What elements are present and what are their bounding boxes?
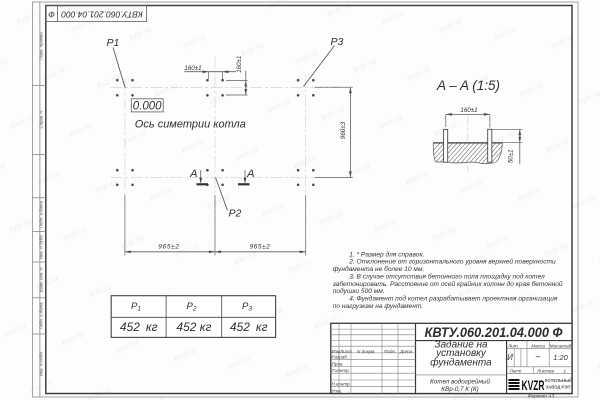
svg-text:КОТЕЛЬНЫЙ: КОТЕЛЬНЫЙ	[545, 378, 572, 383]
svg-text:N докум.: N докум.	[357, 349, 376, 354]
svg-text:A: A	[246, 168, 254, 180]
svg-text:Инв. N дубл.: Инв. N дубл.	[38, 234, 43, 259]
svg-text:КВТУ.060.201.04.000 Ф: КВТУ.060.201.04.000 Ф	[425, 324, 563, 340]
svg-text:A: A	[189, 168, 197, 180]
svg-text:KVZR: KVZR	[522, 377, 545, 393]
svg-text:Дата: Дата	[399, 349, 413, 354]
svg-text:фундамента не более 10 мм.: фундамента не более 10 мм.	[333, 265, 425, 273]
svg-text:Подп. и дата: Подп. и дата	[38, 302, 43, 330]
svg-text:452 кг: 452 кг	[120, 320, 158, 334]
svg-text:КВр-0,7 К (К): КВр-0,7 К (К)	[441, 386, 478, 393]
svg-text:965±2: 965±2	[158, 243, 179, 250]
svg-text:Справ. N: Справ. N	[38, 110, 43, 129]
svg-text:Лист: Лист	[509, 369, 522, 374]
svg-text:И: И	[507, 353, 513, 362]
svg-text:фундамента: фундамента	[430, 356, 492, 368]
svg-text:P2: P2	[229, 208, 242, 220]
svg-text:Подп. и дата: Подп. и дата	[38, 201, 43, 229]
svg-text:Лит.: Лит.	[507, 344, 519, 349]
svg-text:452 кг: 452 кг	[176, 320, 211, 334]
svg-text:Инв. N подл.: Инв. N подл.	[38, 351, 43, 376]
svg-text:Ф: Ф	[48, 9, 55, 19]
svg-text:Котел водогрейный: Котел водогрейный	[430, 378, 490, 386]
svg-text:1:20: 1:20	[553, 353, 568, 362]
svg-text:Листов: Листов	[536, 369, 554, 374]
svg-text:1. * Размер для справок.: 1. * Размер для справок.	[349, 250, 424, 258]
svg-text:2. Отклонение от горизонтально: 2. Отклонение от горизонтального уровня …	[348, 258, 556, 266]
svg-text:Масса: Масса	[531, 344, 545, 349]
svg-text:Лист: Лист	[339, 349, 352, 354]
svg-text:КВТУ.060.201.04.000: КВТУ.060.201.04.000	[61, 9, 143, 19]
svg-text:Пров.: Пров.	[332, 361, 344, 366]
svg-text:Перв. примен.: Перв. примен.	[38, 31, 43, 60]
svg-text:Подп.: Подп.	[384, 349, 396, 354]
svg-text:по нагрузкам на фундамент.: по нагрузкам на фундамент.	[333, 302, 424, 310]
svg-text:Разраб.: Разраб.	[332, 355, 349, 360]
svg-text:4. Фундамент под котел разраба: 4. Фундамент под котел разрабатывает про…	[349, 295, 558, 303]
svg-text:Ось симетрии котла: Ось симетрии котла	[135, 118, 246, 130]
svg-text:Формат А3: Формат А3	[528, 393, 555, 399]
svg-text:160±1: 160±1	[184, 65, 201, 72]
svg-text:Взам. инв. N: Взам. инв. N	[38, 266, 43, 292]
svg-text:1: 1	[564, 369, 567, 374]
svg-text:160±1: 160±1	[236, 56, 243, 73]
svg-text:P3: P3	[331, 36, 344, 48]
svg-text:A – A (1:5): A – A (1:5)	[436, 78, 500, 93]
svg-text:P1: P1	[107, 37, 120, 49]
svg-text:Масштаб: Масштаб	[550, 344, 572, 349]
svg-text:Утв.: Утв.	[332, 388, 342, 393]
svg-text:ЗАВОД РЭП: ЗАВОД РЭП	[546, 384, 571, 389]
svg-text:0.000: 0.000	[133, 101, 162, 113]
svg-text:–: –	[535, 352, 541, 361]
svg-text:Т.контр.: Т.контр.	[332, 368, 351, 373]
svg-text:подушки 500 мм.: подушки 500 мм.	[333, 287, 385, 295]
svg-text:965±2: 965±2	[250, 243, 271, 250]
svg-text:Н.контр.: Н.контр.	[332, 382, 351, 387]
svg-text:160±1: 160±1	[460, 107, 477, 114]
svg-text:3. В случае отсутствия бетонно: 3. В случае отсутствия бетонного пола пл…	[349, 272, 545, 280]
svg-text:960±3: 960±3	[340, 121, 347, 139]
svg-text:50±1: 50±1	[508, 149, 515, 163]
svg-text:забетонировать. Расстояние от: забетонировать. Расстояние от осей крайн…	[332, 280, 563, 288]
svg-text:452 кг: 452 кг	[230, 320, 268, 334]
